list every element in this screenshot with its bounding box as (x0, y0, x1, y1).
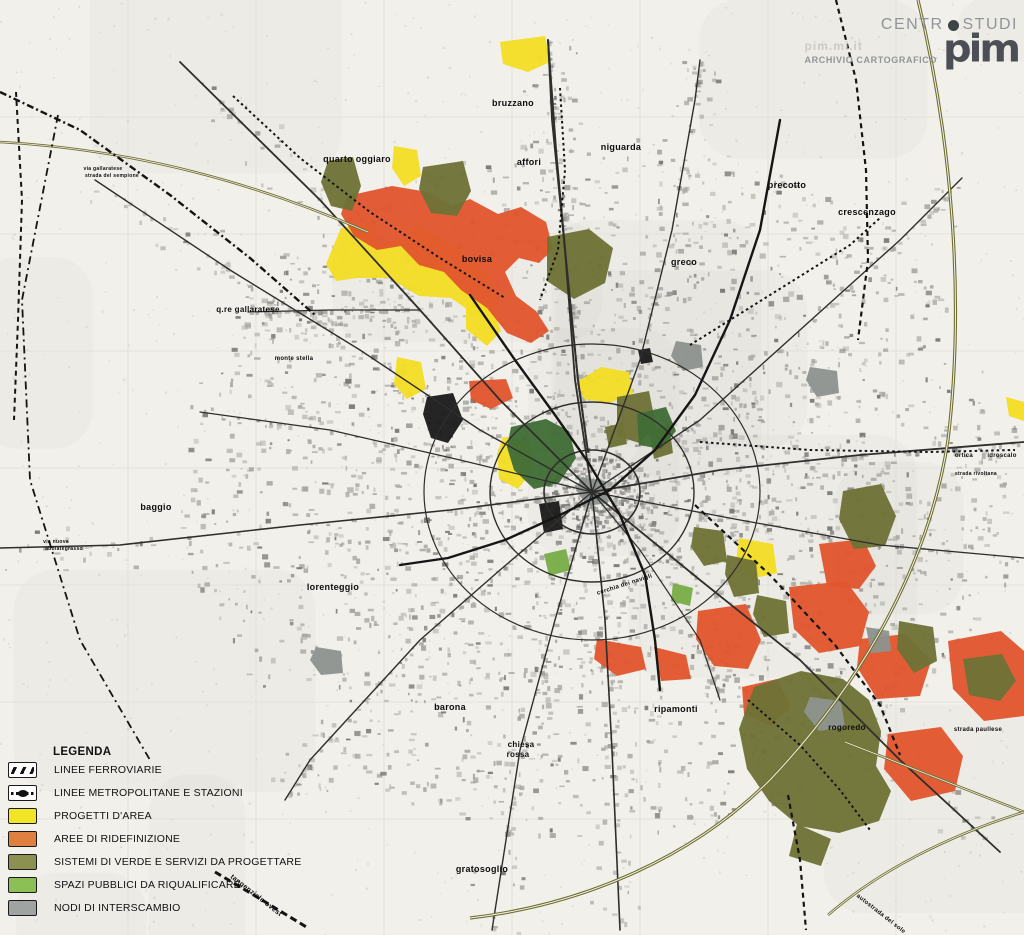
map-label-gratosoglio: gratosoglio (456, 864, 509, 874)
legend-item-orange: AREE DI RIDEFINIZIONE (8, 831, 358, 847)
map-label-via-gallaratese: via gallaratese (84, 166, 123, 172)
metro-swatch-icon (8, 785, 37, 801)
legend-item-green: SPAZI PUBBLICI DA RIQUALIFICARE (8, 877, 358, 893)
legend-item-label: LINEE FERROVIARIE (54, 764, 162, 776)
rail-swatch-icon (8, 762, 37, 778)
map-label-crescenzago: crescenzago (838, 207, 896, 217)
map-label-niguarda: niguarda (601, 142, 642, 152)
map-label-ripamonti: ripamonti (654, 704, 698, 714)
legend-item-label: AREE DI RIDEFINIZIONE (54, 833, 180, 845)
orange-swatch-icon (8, 831, 37, 847)
map-label-affori: affori (517, 157, 541, 167)
legend-item-gray: NODI DI INTERSCAMBIO (8, 900, 358, 916)
map-label-via-nuova: via nuova (43, 539, 69, 545)
map-label-ortica: ortica (955, 453, 974, 459)
legend-item-metro: LINEE METROPOLITANE E STAZIONI (8, 785, 358, 801)
map-label-idroscalo: idroscalo (987, 453, 1016, 459)
legend-item-label: SPAZI PUBBLICI DA RIQUALIFICARE (54, 879, 241, 891)
map-label-chiesa: chiesa (508, 740, 535, 749)
olive-swatch-icon (8, 854, 37, 870)
map-label-abbiategrasso: abbiategrasso (45, 546, 83, 552)
legend-item-label: NODI DI INTERSCAMBIO (54, 902, 181, 914)
map-label-monte-stella: monte stella (275, 356, 314, 362)
map-label-strada-paullese: strada paullese (954, 727, 1003, 733)
map-label-q-re-gallaratese: q.re gallaratese (216, 305, 280, 314)
brand-block: CENTR STUDI pim.mi.it ARCHIVIO CARTOGRAF… (803, 16, 1018, 65)
map-label-quarto-oggiaro: quarto oggiaro (323, 154, 391, 164)
pim-logo: pim (943, 37, 1018, 62)
green-swatch-icon (8, 877, 37, 893)
legend-item-label: SISTEMI DI VERDE E SERVIZI DA PROGETTARE (54, 856, 301, 868)
legend-title: LEGENDA (53, 746, 358, 758)
gray-swatch-icon (8, 900, 37, 916)
yellow-swatch-icon (8, 808, 37, 824)
archive-label: ARCHIVIO CARTOGRAFICO (805, 55, 937, 65)
map-label-lorenteggio: lorenteggio (307, 582, 360, 592)
map-label-rossa: rossa (507, 750, 530, 759)
legend-item-label: PROGETTI D'AREA (54, 810, 152, 822)
legend-item-yellow: PROGETTI D'AREA (8, 808, 358, 824)
map-label-strada-del-sempione: strada del sempione (85, 173, 139, 179)
map-label-barona: barona (434, 702, 467, 712)
legend-item-rail: LINEE FERROVIARIE (8, 762, 358, 778)
map-label-greco: greco (671, 257, 697, 267)
map-label-bruzzano: bruzzano (492, 98, 534, 108)
legend-item-label: LINEE METROPOLITANE E STAZIONI (54, 787, 243, 799)
map-label-strada-rivoltana: strada rivoltana (955, 471, 997, 477)
site-url: pim.mi.it (805, 39, 937, 53)
map-label-precotto: precotto (768, 180, 807, 190)
map-label-rogoredo: rogoredo (828, 723, 866, 732)
brand-title-pre: CENTR (881, 16, 944, 34)
legend-rows: LINEE FERROVIARIELINEE METROPOLITANE E S… (8, 762, 358, 916)
map-label-bovisa: bovisa (462, 254, 493, 264)
map-page: bruzzanoquarto oggiaroafforiniguardaprec… (0, 0, 1024, 935)
legend: LEGENDA LINEE FERROVIARIELINEE METROPOLI… (8, 746, 358, 923)
map-label-baggio: baggio (140, 502, 171, 512)
legend-item-olive: SISTEMI DI VERDE E SERVIZI DA PROGETTARE (8, 854, 358, 870)
